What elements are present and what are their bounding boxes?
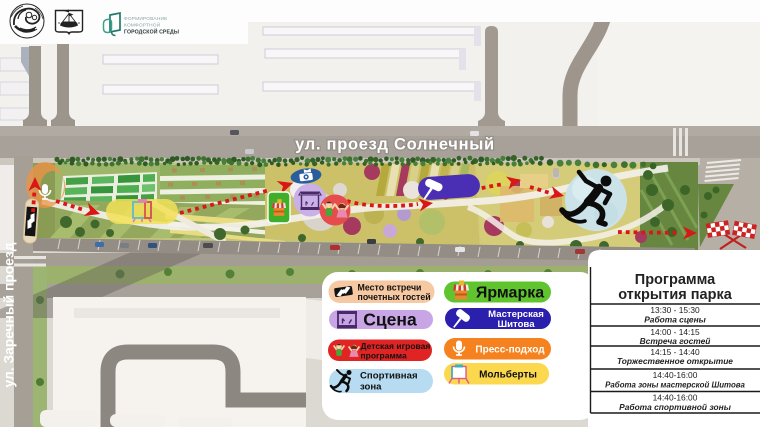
svg-text:Спортивная: Спортивная xyxy=(360,371,418,382)
svg-text:ул. проезд Солнечный: ул. проезд Солнечный xyxy=(295,136,495,154)
svg-text:ул. Заречный проезд: ул. Заречный проезд xyxy=(2,242,17,387)
svg-text:Работа сцены: Работа сцены xyxy=(644,315,706,325)
svg-text:программа: программа xyxy=(361,351,407,361)
svg-text:ФОРМИРОВАНИЕ: ФОРМИРОВАНИЕ xyxy=(124,16,168,22)
svg-text:14:40-16:00: 14:40-16:00 xyxy=(653,370,698,380)
svg-text:зона: зона xyxy=(360,382,382,393)
svg-text:13:30 - 15:30: 13:30 - 15:30 xyxy=(650,305,700,315)
svg-text:Работа спортивной зоны: Работа спортивной зоны xyxy=(619,402,731,412)
svg-text:Мольберты: Мольберты xyxy=(479,369,537,381)
svg-text:Программа: Программа xyxy=(635,272,716,288)
svg-text:ГОРОДСКОЙ СРЕДЫ: ГОРОДСКОЙ СРЕДЫ xyxy=(124,28,179,36)
svg-text:Место встречи: Место встречи xyxy=(358,283,422,293)
svg-text:открытия парка: открытия парка xyxy=(618,287,733,303)
svg-text:Торжественное открытие: Торжественное открытие xyxy=(617,356,733,366)
svg-text:Пресс-подход: Пресс-подход xyxy=(475,345,545,356)
svg-text:Детская игровая: Детская игровая xyxy=(361,341,431,351)
svg-text:Ярмарка: Ярмарка xyxy=(476,285,544,302)
svg-text:почетных гостей: почетных гостей xyxy=(358,292,431,302)
svg-text:Шитова: Шитова xyxy=(497,319,535,330)
svg-text:Работа зоны мастерской Шитова: Работа зоны мастерской Шитова xyxy=(605,381,745,390)
svg-text:Сцена: Сцена xyxy=(363,310,417,330)
svg-text:14:40-16:00: 14:40-16:00 xyxy=(653,393,698,403)
svg-text:Встреча гостей: Встреча гостей xyxy=(640,336,711,346)
